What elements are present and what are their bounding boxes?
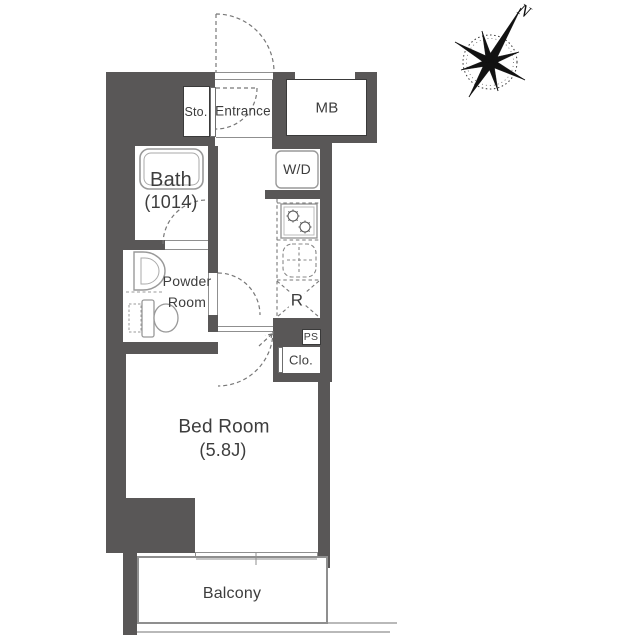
closet-label: Clo.: [289, 354, 313, 367]
closet-sliding-door: [278, 347, 283, 373]
wall: [106, 146, 135, 240]
bedroom-doorway: [218, 326, 273, 332]
wall: [318, 382, 330, 552]
wall-opening: [295, 72, 355, 79]
balcony-label: Balcony: [203, 586, 261, 602]
bath-size-label: (1014): [144, 193, 197, 211]
room-hallway: [218, 138, 273, 327]
wall: [273, 318, 332, 327]
powder-room-label-line1: Powder: [163, 274, 212, 288]
balcony-boundary-lines: [137, 623, 397, 632]
entrance-step-line: [216, 137, 272, 138]
powder-room-label-line2: Room: [168, 295, 206, 309]
wall: [106, 354, 126, 498]
wall: [265, 190, 332, 199]
bath-doorway: [165, 240, 208, 250]
wall: [123, 553, 137, 635]
bedroom-size-label: (5.8J): [199, 441, 246, 459]
wall: [106, 250, 123, 342]
wall: [208, 146, 218, 273]
bath-label: Bath: [150, 170, 192, 190]
compass-rose-icon: N: [455, 0, 536, 97]
compass-north-label: N: [514, 0, 536, 23]
entrance-label: Entrance: [215, 104, 271, 118]
bedroom-label: Bed Room: [178, 418, 269, 437]
floorplan-canvas: N Sto. Entrance MB Bath (1014) W/D Powde…: [0, 0, 640, 639]
wall: [106, 342, 218, 354]
wall: [208, 315, 218, 332]
storage-label: Sto.: [184, 106, 207, 119]
pipe-space-label: PS: [304, 332, 318, 343]
wall: [273, 373, 332, 382]
washer-dryer-label: W/D: [283, 162, 311, 176]
room-bedroom-lower: [195, 498, 318, 552]
refrigerator-label: R: [289, 292, 305, 309]
wall: [106, 498, 195, 553]
entrance-doorway: [215, 72, 273, 80]
meter-box-label: MB: [316, 101, 339, 116]
